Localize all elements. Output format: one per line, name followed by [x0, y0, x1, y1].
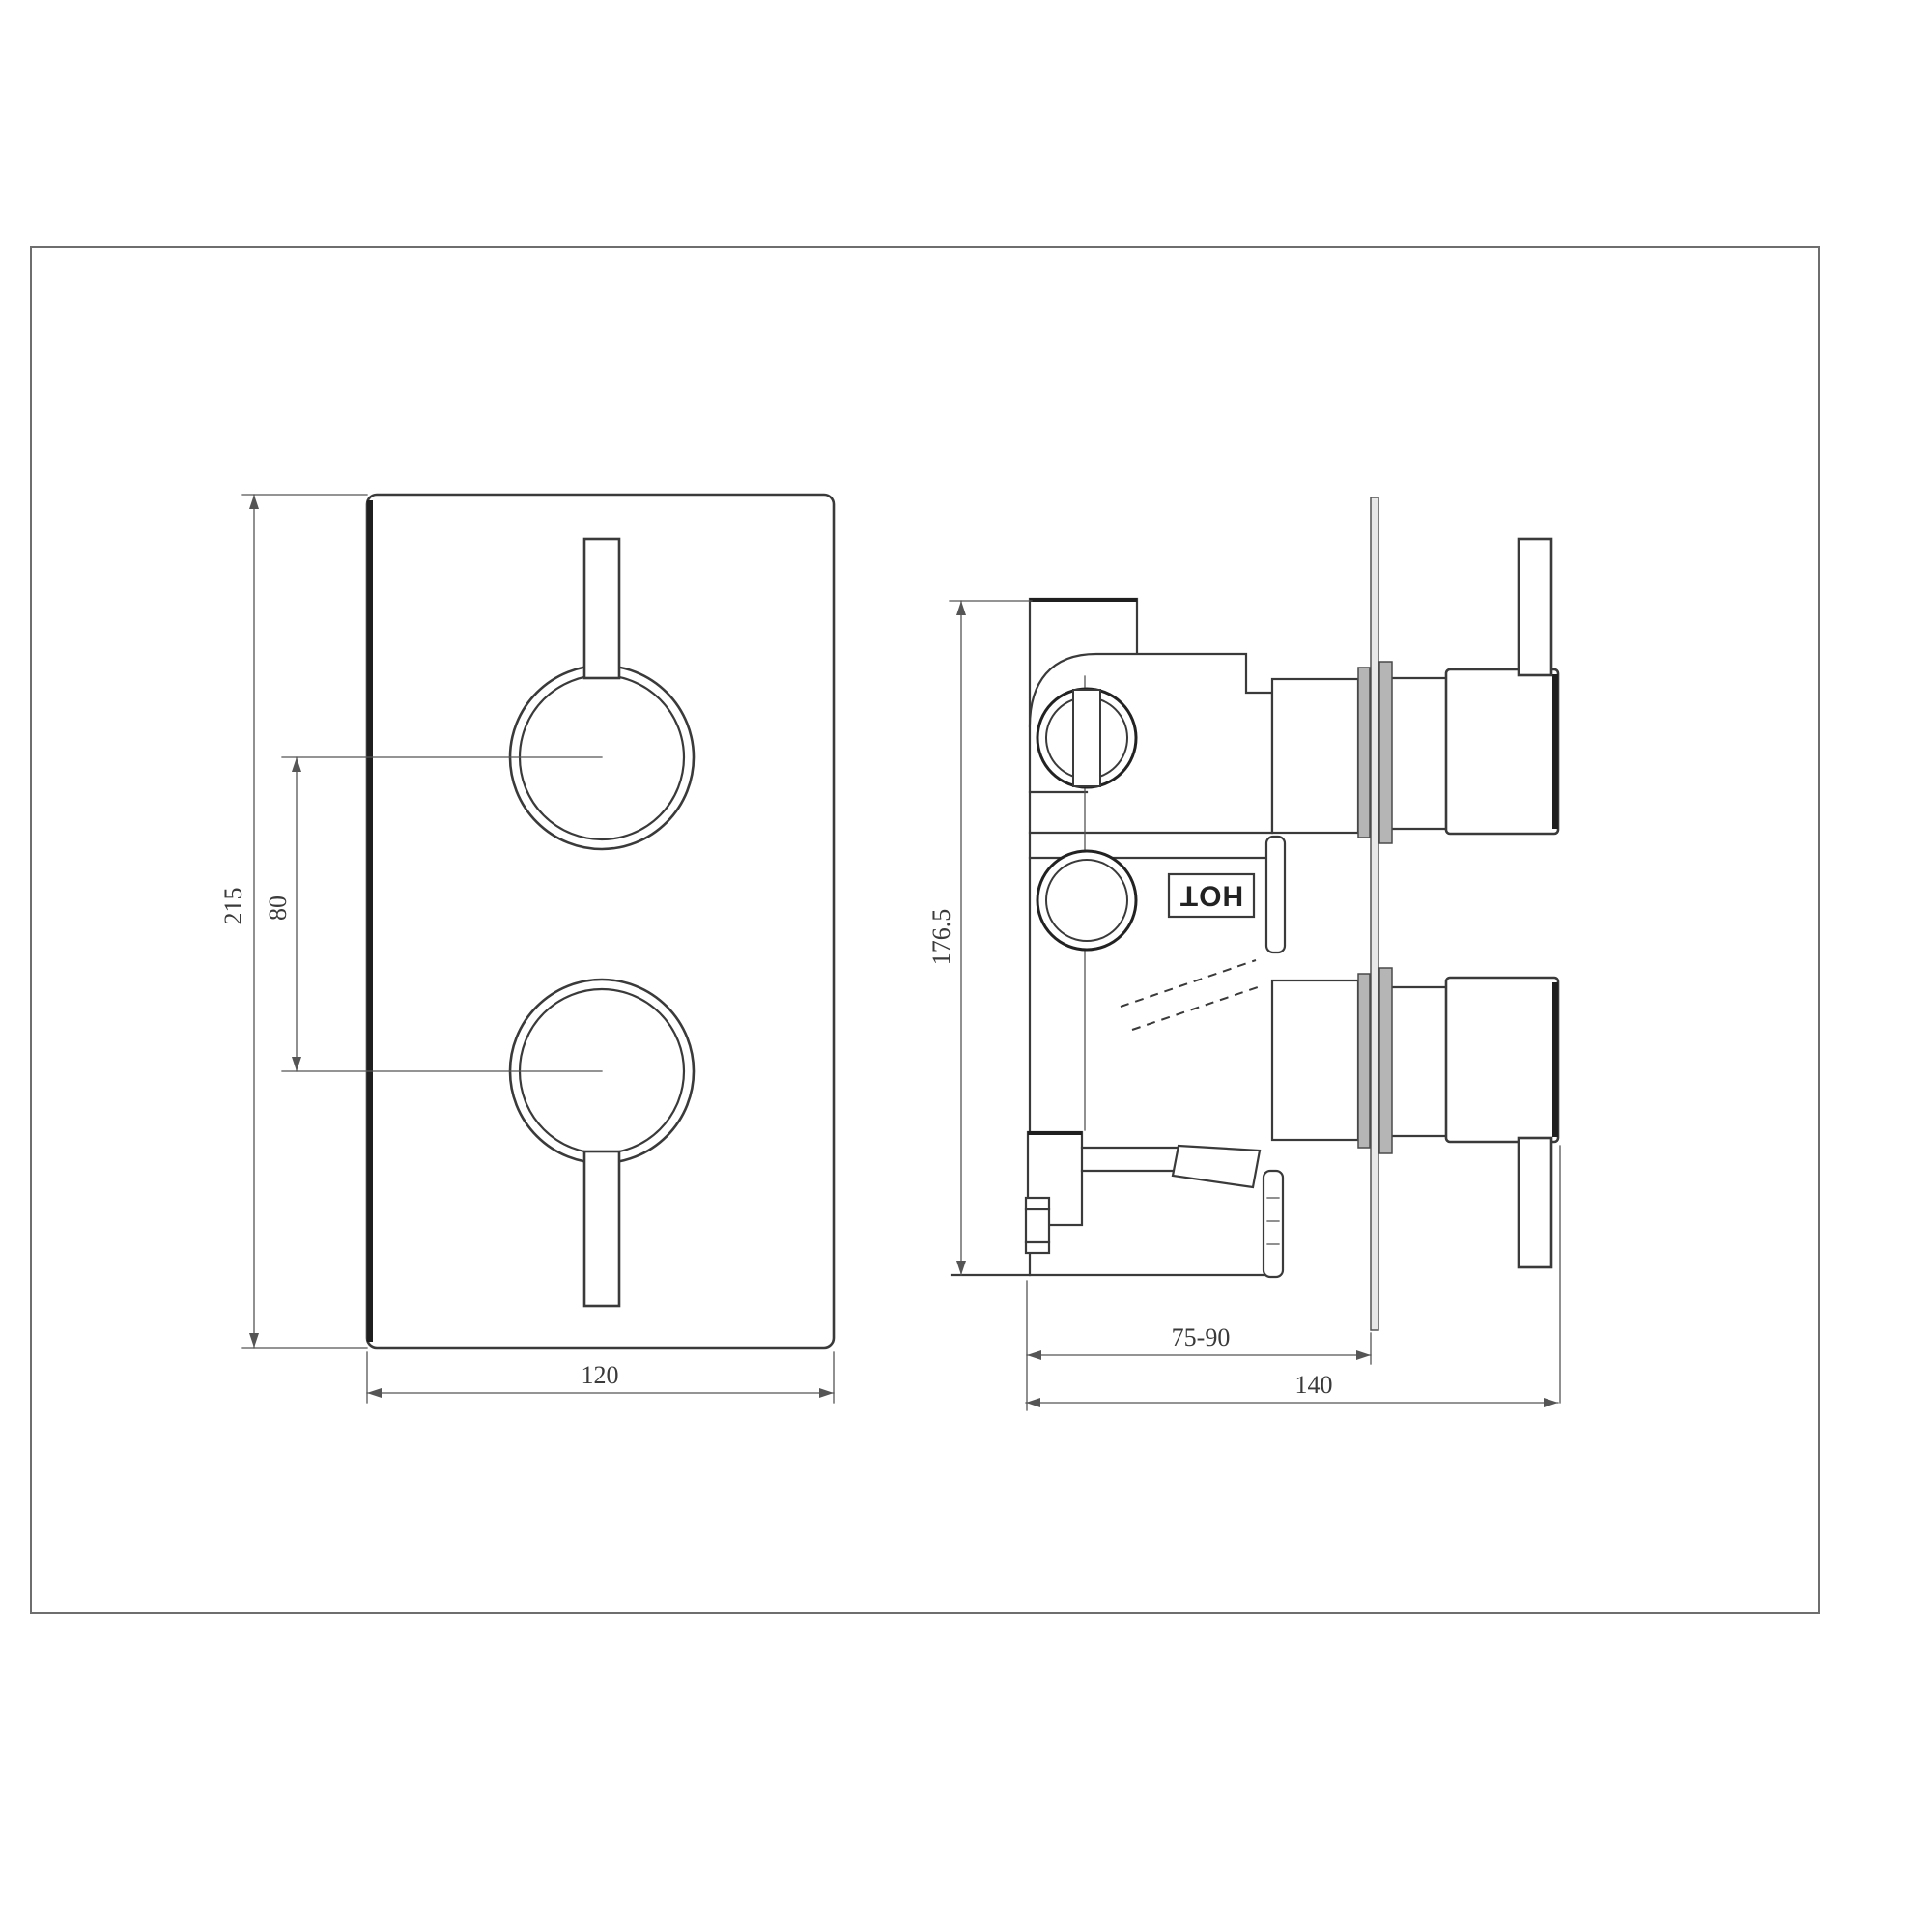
upper-cartridge	[1272, 679, 1358, 833]
dim-label-spacing: 80	[264, 895, 292, 921]
upper-handle-lever	[1519, 539, 1551, 675]
bottom-inlet-port	[1037, 851, 1136, 950]
arrow-down-icon	[292, 1057, 301, 1071]
outlet-step-fitting	[1026, 1198, 1049, 1253]
top-port-stem	[1073, 690, 1100, 786]
upper-handle-body	[1446, 669, 1558, 834]
wall-plate-section	[1371, 497, 1378, 1330]
side-handles	[1446, 539, 1560, 1403]
lower-collar-front	[1379, 968, 1392, 1153]
arrow-left-icon	[1027, 1350, 1041, 1360]
mid-connector	[1266, 837, 1285, 952]
outlet-angled-union	[1173, 1146, 1260, 1187]
side-body	[952, 599, 1285, 1277]
arrow-right-icon	[1544, 1398, 1558, 1407]
side-view: HOT	[927, 497, 1560, 1410]
arrow-left-icon	[1026, 1398, 1040, 1407]
arrow-right-icon	[819, 1388, 834, 1398]
drawing-border	[31, 247, 1819, 1613]
dim-label-total-depth: 140	[1295, 1371, 1333, 1399]
arrow-right-icon	[1356, 1350, 1371, 1360]
lower-collar-back	[1358, 974, 1370, 1148]
arrow-up-icon	[292, 757, 301, 772]
drawing-canvas: 215 80 120	[0, 0, 1932, 1932]
lower-cartridge	[1272, 980, 1358, 1140]
lower-handle-body	[1446, 978, 1558, 1142]
dim-front-width: 120	[367, 1352, 834, 1403]
wall-plate	[1358, 497, 1392, 1330]
technical-drawing-svg: 215 80 120	[0, 0, 1932, 1932]
front-view: 215 80 120	[219, 495, 834, 1403]
dim-label-height: 215	[219, 888, 247, 925]
hidden-channel-line-1	[1121, 960, 1256, 1007]
dim-label-depth-range: 75-90	[1172, 1323, 1231, 1351]
hot-label: HOT	[1169, 874, 1254, 917]
arrow-up-icon	[956, 601, 966, 615]
dim-front-height: 215	[219, 495, 367, 1348]
arrow-up-icon	[249, 495, 259, 509]
dim-side-total-depth: 140	[1026, 1371, 1558, 1407]
upper-collar-front	[1379, 662, 1392, 843]
top-knob-lever	[584, 539, 619, 678]
bottom-outlet	[1026, 1132, 1260, 1253]
bottom-knob-lever	[584, 1151, 619, 1306]
arrow-down-icon	[956, 1261, 966, 1275]
bottom-port-inner-circle	[1046, 860, 1127, 941]
dim-label-side-height: 176.5	[927, 909, 955, 966]
hot-label-text: HOT	[1179, 880, 1243, 912]
dim-side-height: 176.5	[927, 601, 1032, 1275]
arrow-down-icon	[249, 1333, 259, 1348]
lower-connector	[1264, 1171, 1283, 1277]
hidden-channel-line-2	[1132, 985, 1264, 1030]
top-inlet-port	[1037, 689, 1136, 787]
lower-handle-lever	[1519, 1138, 1551, 1267]
dim-front-spacing: 80	[264, 757, 301, 1071]
upper-collar-back	[1358, 668, 1370, 838]
arrow-left-icon	[367, 1388, 382, 1398]
dim-label-width: 120	[582, 1361, 619, 1389]
